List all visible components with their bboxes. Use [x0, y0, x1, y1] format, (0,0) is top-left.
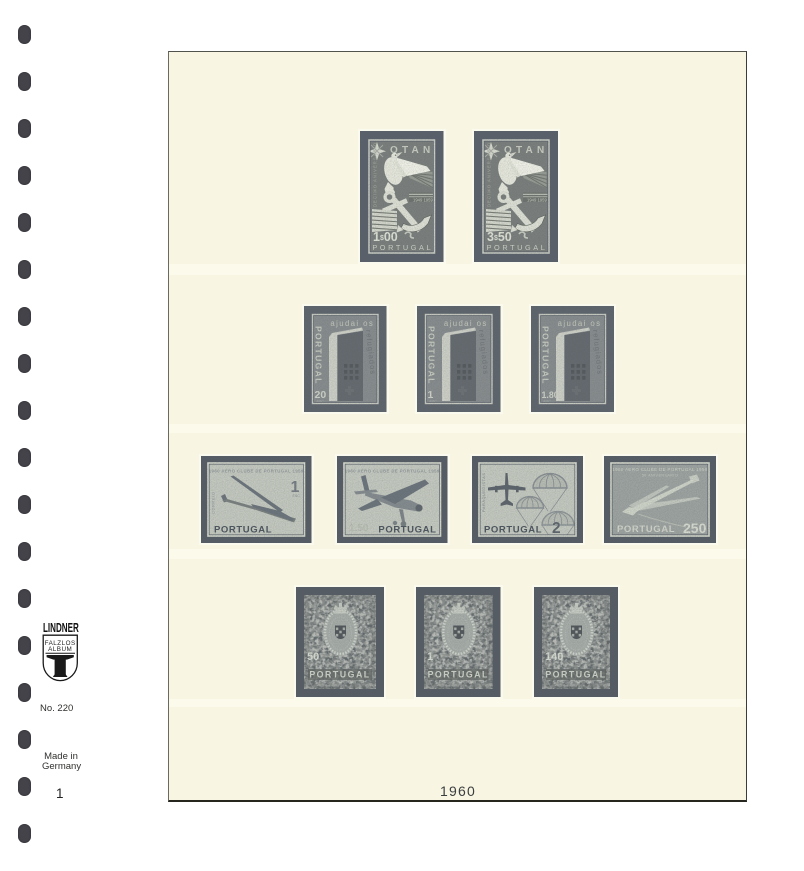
svg-text:ALBUM: ALBUM [48, 646, 72, 653]
